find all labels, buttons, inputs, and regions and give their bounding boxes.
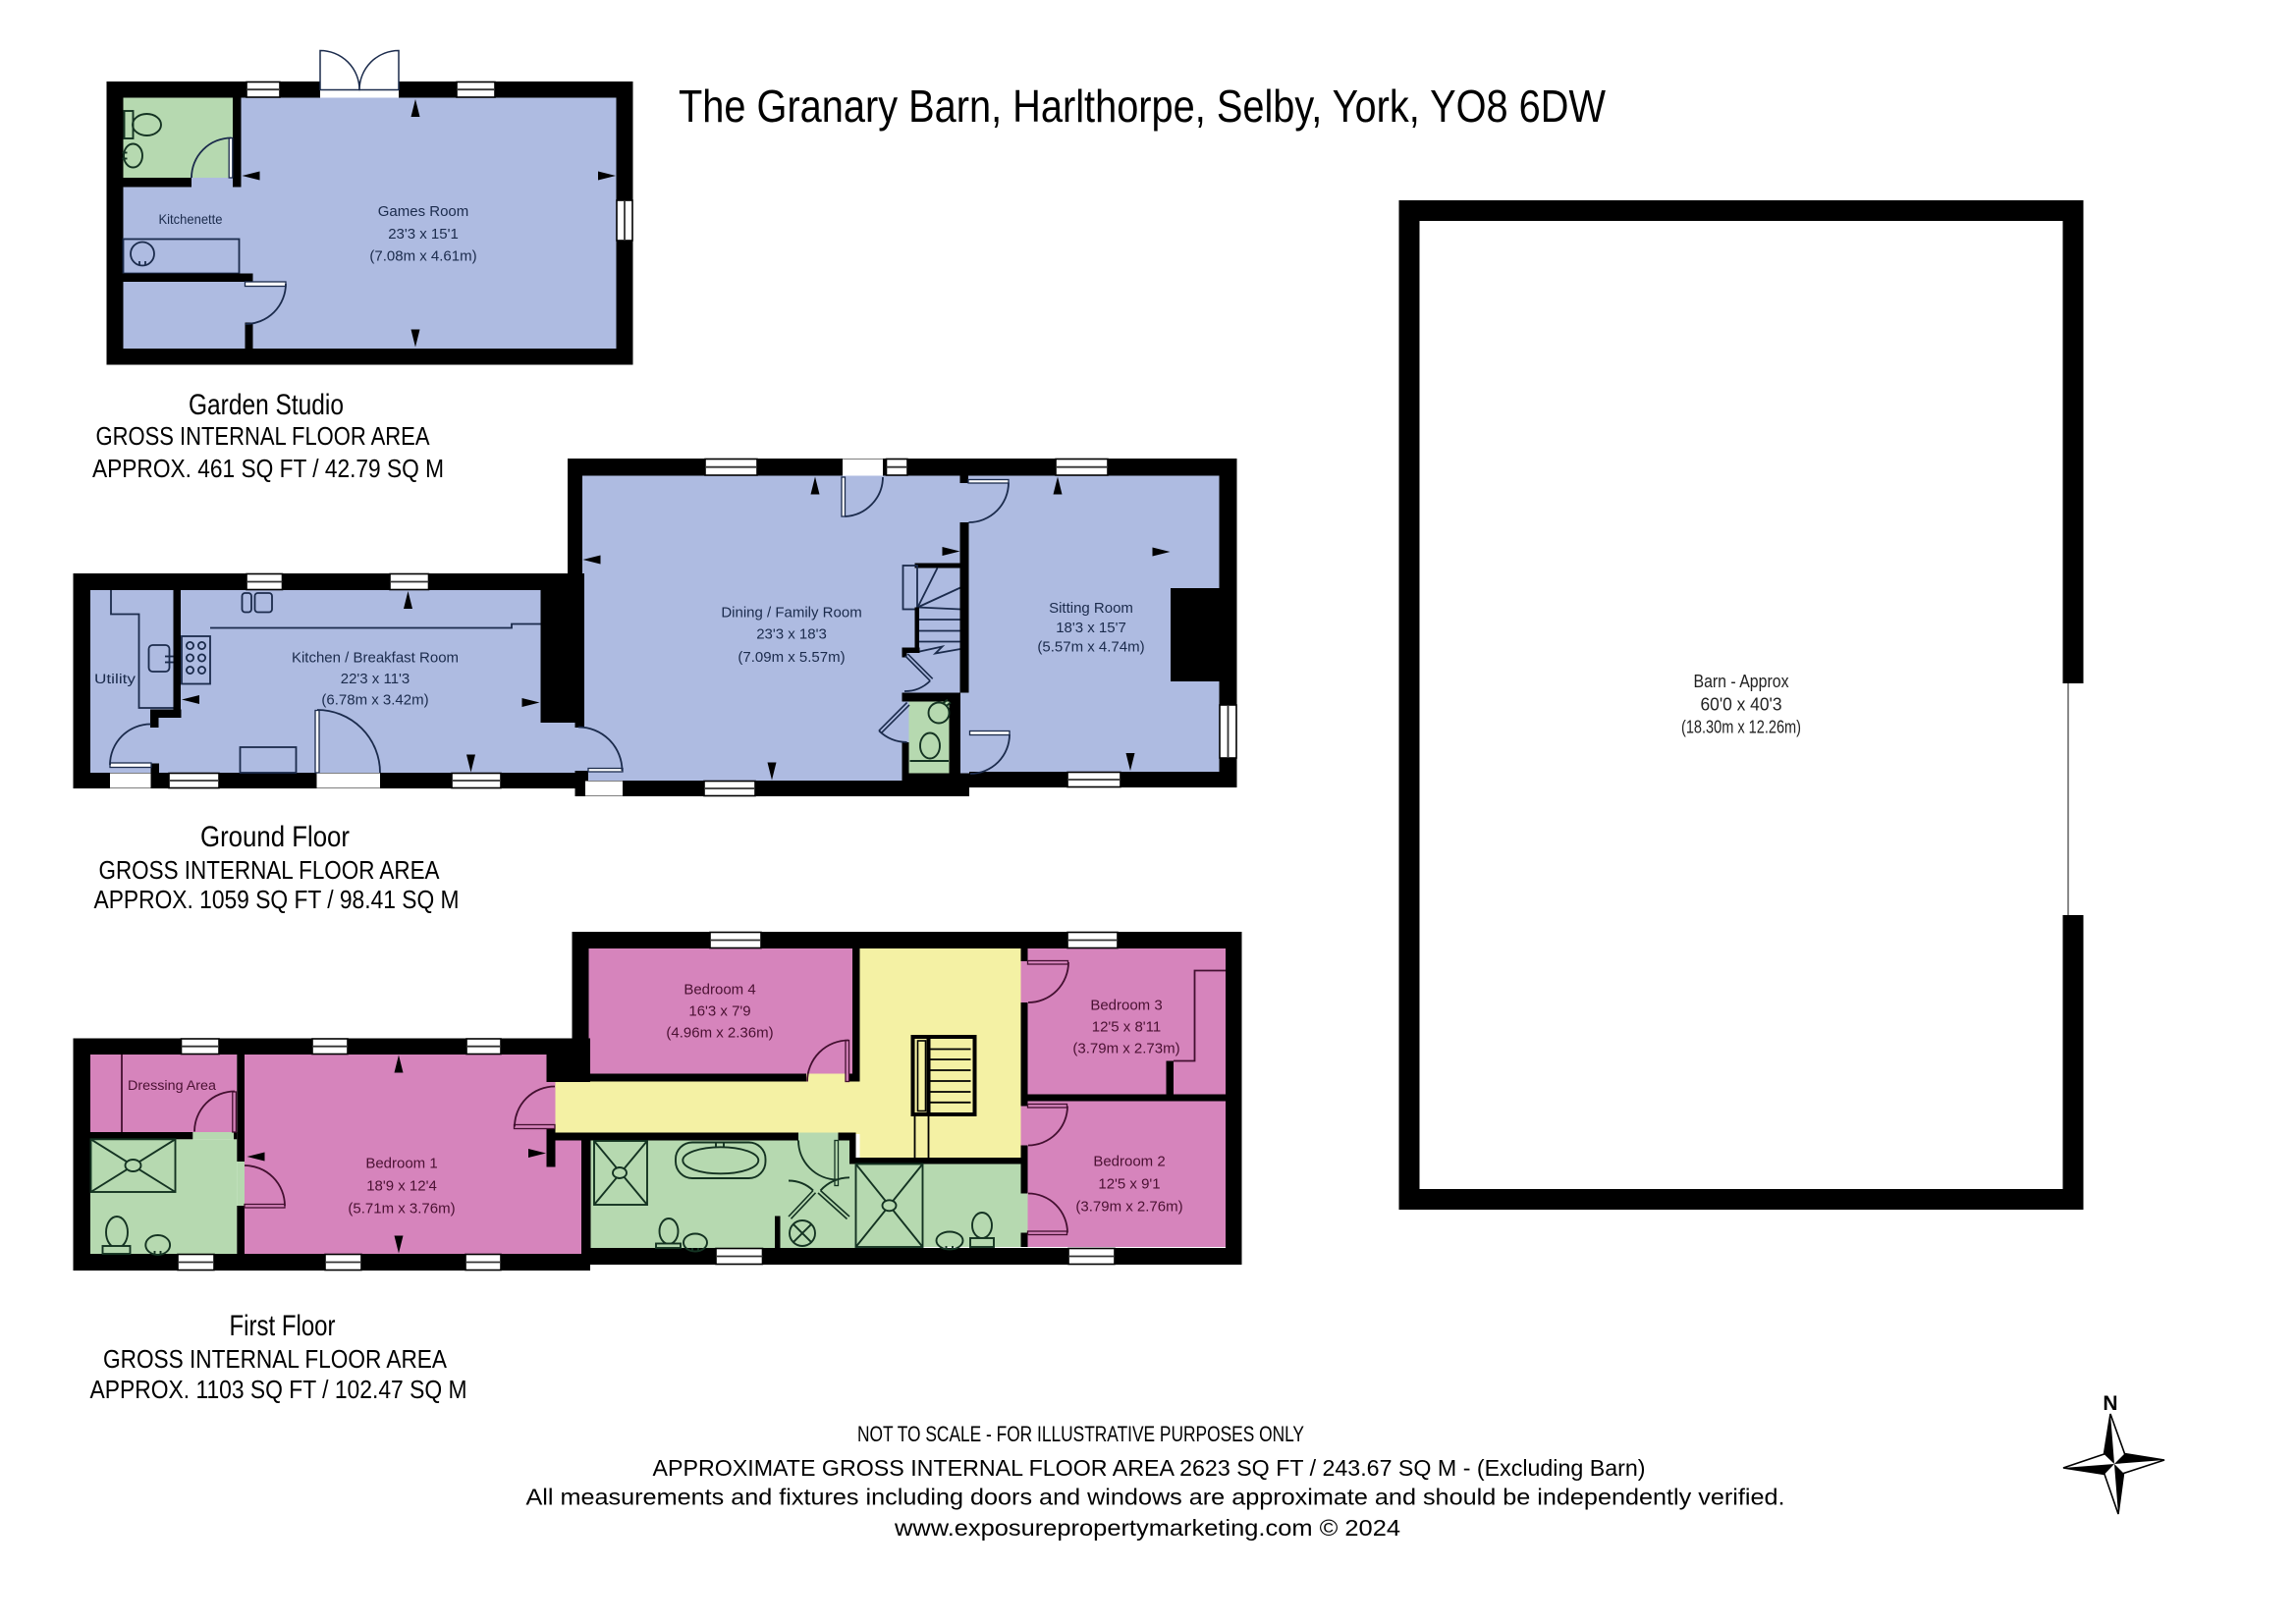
svg-text:(3.79m x 2.76m): (3.79m x 2.76m) — [1075, 1199, 1182, 1216]
svg-text:All measurements and fixtures: All measurements and fixtures including … — [526, 1485, 1785, 1510]
svg-text:Ground Floor: Ground Floor — [200, 821, 350, 853]
svg-text:(5.71m x 3.76m): (5.71m x 3.76m) — [348, 1201, 455, 1218]
svg-text:GROSS INTERNAL FLOOR AREA: GROSS INTERNAL FLOOR AREA — [96, 421, 431, 451]
svg-text:60'0 x 40'3: 60'0 x 40'3 — [1701, 695, 1782, 715]
svg-text:(4.96m x 2.36m): (4.96m x 2.36m) — [666, 1025, 773, 1042]
svg-text:APPROX. 1059 SQ FT / 98.41 SQ: APPROX. 1059 SQ FT / 98.41 SQ M — [94, 885, 460, 914]
svg-text:Bedroom 1: Bedroom 1 — [365, 1156, 437, 1172]
svg-text:Dressing Area: Dressing Area — [128, 1078, 217, 1093]
svg-text:(7.08m x 4.61m): (7.08m x 4.61m) — [369, 248, 476, 265]
svg-text:(3.79m x 2.73m): (3.79m x 2.73m) — [1072, 1041, 1179, 1057]
svg-text:APPROX. 461 SQ FT / 42.79 SQ M: APPROX. 461 SQ FT / 42.79 SQ M — [92, 454, 444, 483]
svg-text:Games Room: Games Room — [378, 203, 469, 220]
svg-text:Barn - Approx: Barn - Approx — [1694, 672, 1789, 691]
svg-text:N: N — [2103, 1392, 2117, 1415]
svg-text:APPROX. 1103 SQ FT / 102.47 SQ: APPROX. 1103 SQ FT / 102.47 SQ M — [90, 1375, 467, 1404]
svg-text:First Floor: First Floor — [230, 1310, 336, 1342]
svg-text:Bedroom 4: Bedroom 4 — [683, 982, 755, 999]
svg-text:NOT TO SCALE - FOR ILLUSTRATIV: NOT TO SCALE - FOR ILLUSTRATIVE PURPOSES… — [857, 1422, 1304, 1446]
svg-text:(18.30m x 12.26m): (18.30m x 12.26m) — [1681, 718, 1801, 737]
svg-text:www.exposurepropertymarketing.: www.exposurepropertymarketing.com © 2024 — [894, 1515, 1400, 1541]
svg-text:Sitting Room: Sitting Room — [1049, 600, 1133, 617]
svg-text:Garden Studio: Garden Studio — [189, 389, 344, 421]
svg-text:(7.09m x 5.57m): (7.09m x 5.57m) — [738, 649, 845, 666]
svg-text:16'3 x 7'9: 16'3 x 7'9 — [688, 1003, 750, 1020]
svg-text:(6.78m x 3.42m): (6.78m x 3.42m) — [321, 692, 428, 709]
svg-text:Kitchen / Breakfast Room: Kitchen / Breakfast Room — [292, 650, 459, 667]
svg-text:GROSS INTERNAL FLOOR AREA: GROSS INTERNAL FLOOR AREA — [103, 1344, 448, 1374]
svg-text:Dining / Family Room: Dining / Family Room — [721, 605, 861, 622]
svg-text:APPROXIMATE GROSS INTERNAL FLO: APPROXIMATE GROSS INTERNAL FLOOR AREA 26… — [653, 1455, 1646, 1481]
svg-text:18'3 x 15'7: 18'3 x 15'7 — [1056, 620, 1126, 636]
svg-text:23'3 x 15'1: 23'3 x 15'1 — [388, 226, 459, 243]
svg-text:18'9 x 12'4: 18'9 x 12'4 — [366, 1178, 437, 1195]
svg-text:23'3 x 18'3: 23'3 x 18'3 — [756, 626, 827, 643]
svg-text:Utility: Utility — [94, 672, 136, 686]
svg-text:12'5 x 9'1: 12'5 x 9'1 — [1098, 1176, 1160, 1193]
svg-text:Bedroom 2: Bedroom 2 — [1093, 1154, 1165, 1170]
svg-text:Bedroom 3: Bedroom 3 — [1090, 998, 1162, 1014]
svg-text:The Granary Barn, Harlthorpe,: The Granary Barn, Harlthorpe, Selby, Yor… — [679, 81, 1606, 132]
svg-text:22'3 x 11'3: 22'3 x 11'3 — [341, 671, 410, 687]
svg-text:Kitchenette: Kitchenette — [159, 211, 223, 227]
svg-text:GROSS INTERNAL FLOOR AREA: GROSS INTERNAL FLOOR AREA — [99, 855, 441, 885]
svg-text:12'5 x 8'11: 12'5 x 8'11 — [1092, 1019, 1162, 1036]
svg-text:(5.57m x 4.74m): (5.57m x 4.74m) — [1037, 639, 1144, 656]
